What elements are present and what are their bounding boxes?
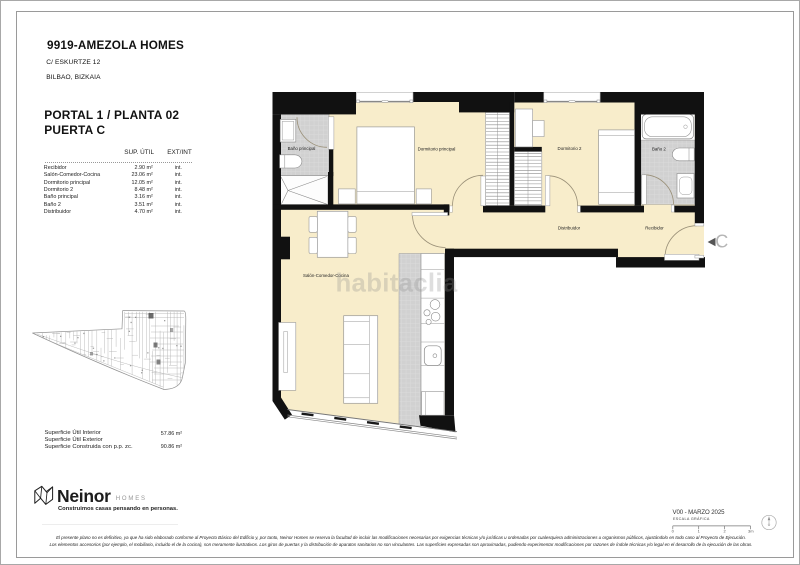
svg-text:C: C bbox=[715, 232, 728, 252]
svg-text:Dormitorio 2: Dormitorio 2 bbox=[558, 146, 582, 151]
svg-text:1: 1 bbox=[698, 529, 701, 534]
svg-text:Distribuidor: Distribuidor bbox=[558, 225, 581, 230]
svg-text:habitaclia: habitaclia bbox=[336, 270, 458, 298]
svg-text:Baño principal: Baño principal bbox=[288, 146, 316, 151]
svg-text:2: 2 bbox=[723, 529, 726, 534]
svg-text:Recibidor: Recibidor bbox=[645, 225, 664, 230]
svg-text:3m: 3m bbox=[748, 529, 754, 534]
svg-text:0: 0 bbox=[672, 529, 675, 534]
svg-text:Dormitorio principal: Dormitorio principal bbox=[418, 147, 456, 152]
svg-text:Baño 2: Baño 2 bbox=[652, 147, 666, 152]
